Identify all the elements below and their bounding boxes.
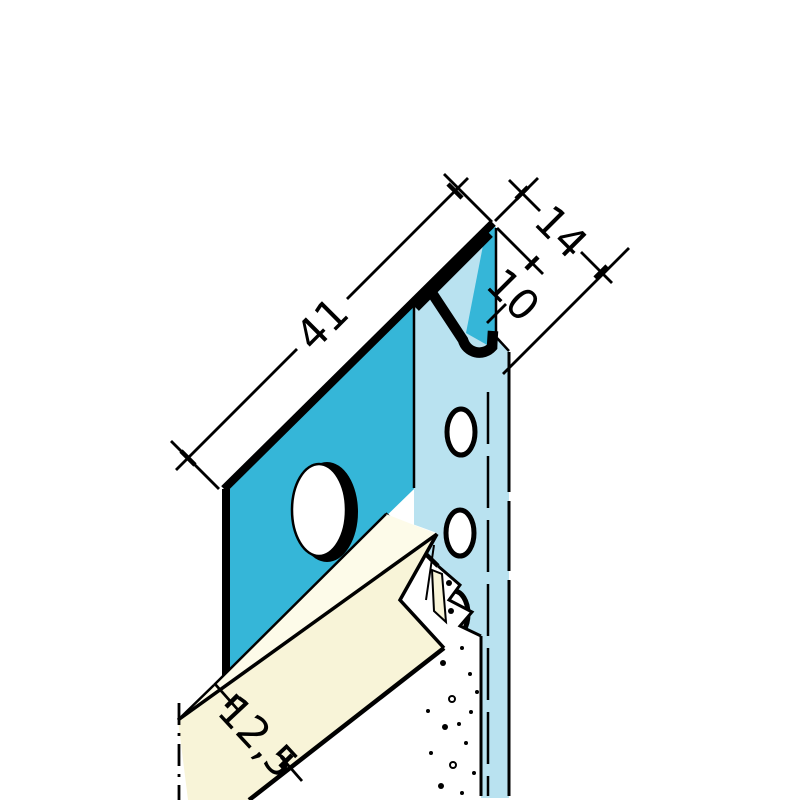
stipple-dot <box>446 580 452 586</box>
profile-drawing: 41 14 10 12,5 <box>0 0 800 800</box>
stipple-dot <box>449 696 455 702</box>
stipple-dot <box>469 710 473 714</box>
technical-drawing-canvas: 41 14 10 12,5 <box>0 0 800 800</box>
stipple-dot <box>457 722 461 726</box>
stipple-dot <box>464 741 468 745</box>
flange-hole-icon <box>292 464 346 556</box>
stipple-dot <box>440 660 446 666</box>
stipple-dot <box>475 690 479 694</box>
stipple-dot <box>426 709 430 713</box>
web-hole-icon <box>447 409 475 455</box>
stipple-dot <box>472 771 476 775</box>
stipple-dot <box>429 751 433 755</box>
stipple-dot <box>450 762 456 768</box>
stipple-dot <box>448 608 454 614</box>
stipple-dot <box>442 724 448 730</box>
web-hole-icon <box>446 510 474 556</box>
dimension-line <box>509 180 540 211</box>
extension-line <box>495 178 538 221</box>
stipple-dot <box>468 672 472 676</box>
stipple-dot <box>460 791 464 795</box>
extension-line <box>444 174 492 222</box>
stipple-dot <box>460 646 464 650</box>
stipple-dot <box>438 783 444 789</box>
